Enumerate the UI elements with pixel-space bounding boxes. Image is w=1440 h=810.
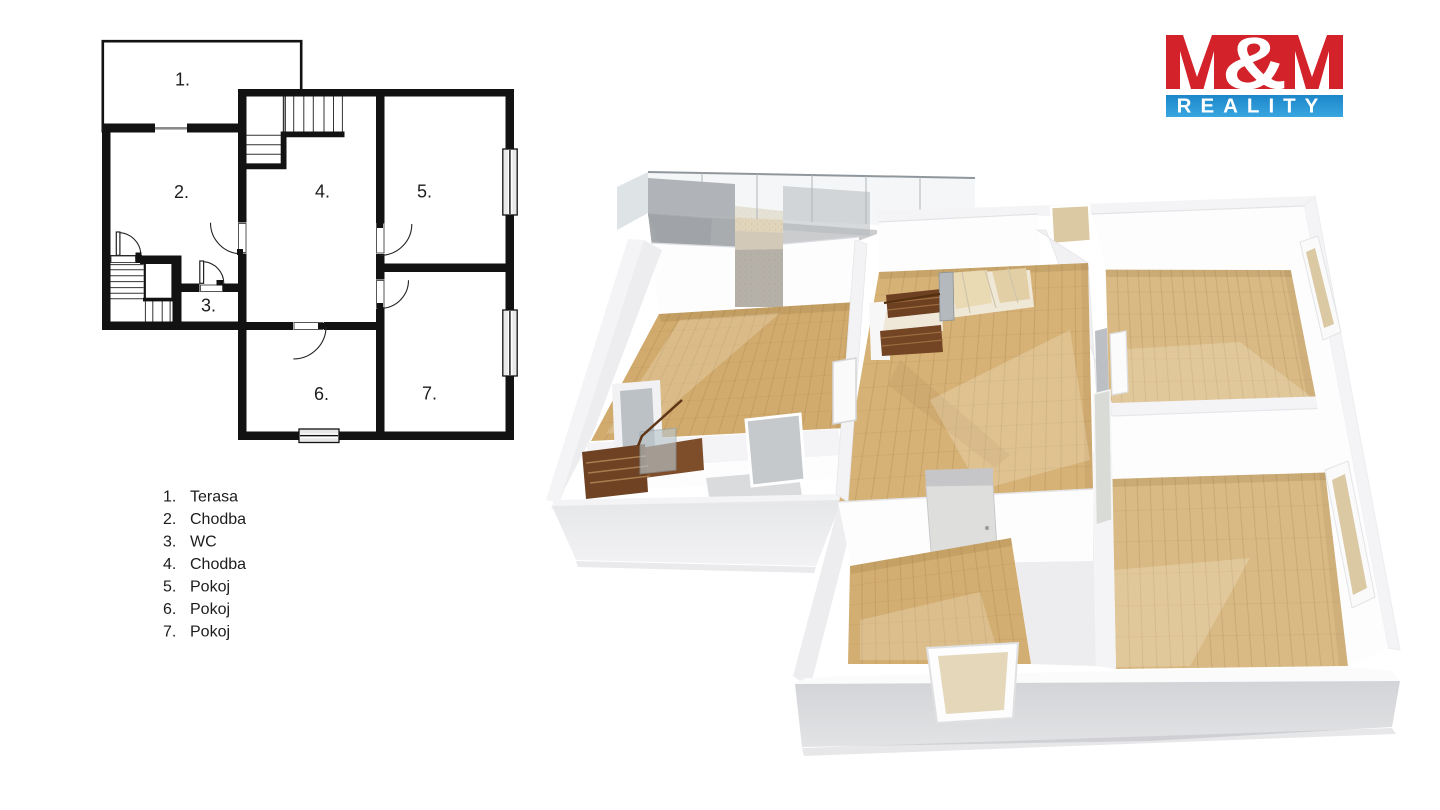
svg-text:7.: 7. bbox=[163, 624, 176, 641]
svg-text:7.: 7. bbox=[422, 384, 437, 404]
svg-text:REALITY: REALITY bbox=[1177, 95, 1328, 118]
svg-text:&: & bbox=[1222, 23, 1287, 105]
svg-text:Pokoj: Pokoj bbox=[190, 601, 230, 618]
svg-text:3.: 3. bbox=[163, 534, 176, 551]
svg-text:4.: 4. bbox=[315, 182, 330, 202]
svg-text:6.: 6. bbox=[163, 601, 176, 618]
svg-text:2.: 2. bbox=[163, 511, 176, 528]
svg-text:2.: 2. bbox=[174, 182, 189, 202]
svg-text:6.: 6. bbox=[314, 384, 329, 404]
svg-text:Chodba: Chodba bbox=[190, 511, 246, 528]
svg-text:1.: 1. bbox=[175, 70, 190, 90]
svg-text:Chodba: Chodba bbox=[190, 556, 246, 573]
svg-text:5.: 5. bbox=[163, 579, 176, 596]
svg-text:1.: 1. bbox=[163, 489, 176, 506]
svg-text:3.: 3. bbox=[201, 296, 216, 316]
svg-text:Pokoj: Pokoj bbox=[190, 624, 230, 641]
svg-text:Terasa: Terasa bbox=[190, 489, 238, 506]
svg-text:Pokoj: Pokoj bbox=[190, 579, 230, 596]
svg-text:5.: 5. bbox=[417, 182, 432, 202]
svg-text:4.: 4. bbox=[163, 556, 176, 573]
svg-text:WC: WC bbox=[190, 534, 217, 551]
